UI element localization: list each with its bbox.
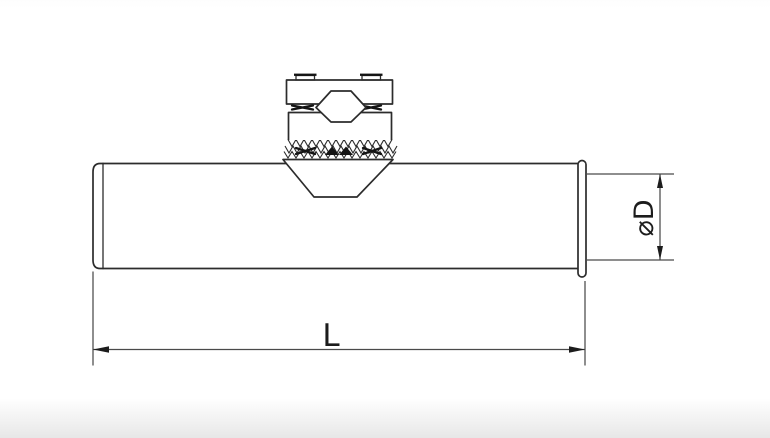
- clamp-bolts: [294, 74, 383, 80]
- technical-drawing-canvas: ⌀D L: [0, 0, 770, 438]
- bolt-head-left-top-icon: [294, 74, 317, 76]
- washer-mark-left: [292, 106, 313, 110]
- cylinder-left-rounded-cap: [93, 164, 103, 269]
- length-label: L: [322, 318, 340, 354]
- length-dimension: L: [93, 272, 585, 366]
- bolt-head-right-top-icon: [360, 74, 383, 76]
- cylinder-end-flange: [578, 161, 586, 278]
- arrow-up-icon: [657, 174, 663, 188]
- arrow-left-icon: [93, 346, 109, 353]
- diameter-label: ⌀D: [629, 199, 660, 236]
- serration-row-upper: [288, 140, 392, 147]
- diameter-dimension: ⌀D: [587, 174, 674, 260]
- arrow-down-icon: [657, 246, 663, 260]
- clamp-saddle-base: [283, 160, 393, 198]
- serrated-interface: [284, 140, 397, 159]
- arrow-right-icon: [569, 346, 585, 353]
- drawing-svg: ⌀D L: [0, 0, 770, 438]
